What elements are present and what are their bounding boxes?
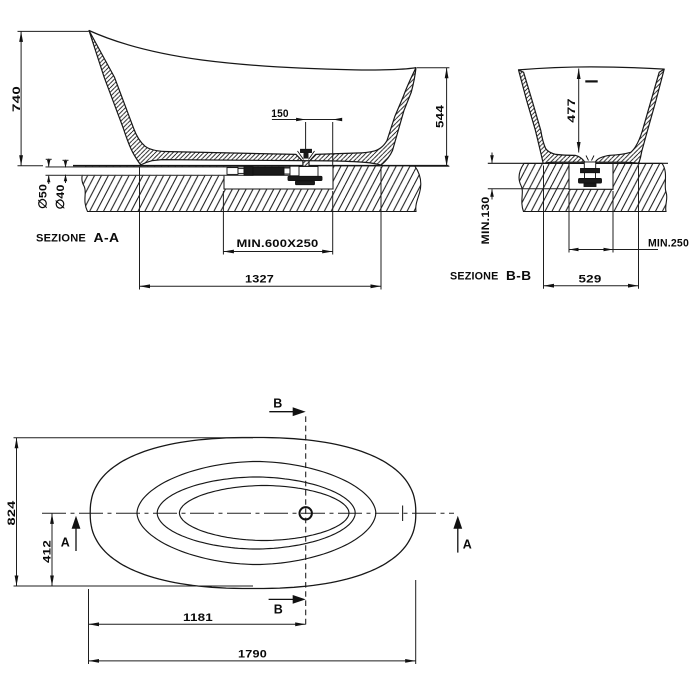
svg-text:529: 529	[579, 274, 602, 286]
svg-text:B: B	[274, 603, 283, 617]
svg-text:412: 412	[41, 540, 53, 563]
svg-text:824: 824	[6, 500, 18, 526]
svg-text:1181: 1181	[183, 612, 213, 624]
svg-text:MIN.250: MIN.250	[648, 238, 689, 250]
svg-text:A-A: A-A	[94, 231, 120, 245]
svg-text:150: 150	[271, 108, 289, 120]
svg-text:1790: 1790	[238, 648, 267, 660]
svg-text:A: A	[61, 536, 70, 550]
svg-text:544: 544	[434, 104, 446, 128]
svg-text:∅50: ∅50	[38, 184, 50, 209]
svg-text:B-B: B-B	[506, 269, 532, 283]
svg-text:MIN.600X250: MIN.600X250	[237, 238, 319, 250]
svg-text:B: B	[273, 397, 282, 411]
svg-text:∅40: ∅40	[55, 185, 67, 210]
svg-text:A: A	[463, 538, 472, 552]
svg-text:SEZIONE: SEZIONE	[36, 233, 86, 245]
svg-text:1327: 1327	[245, 274, 274, 286]
svg-text:MIN.130: MIN.130	[480, 197, 492, 245]
svg-text:740: 740	[11, 86, 23, 112]
svg-text:477: 477	[566, 98, 578, 123]
svg-text:SEZIONE: SEZIONE	[450, 271, 499, 283]
